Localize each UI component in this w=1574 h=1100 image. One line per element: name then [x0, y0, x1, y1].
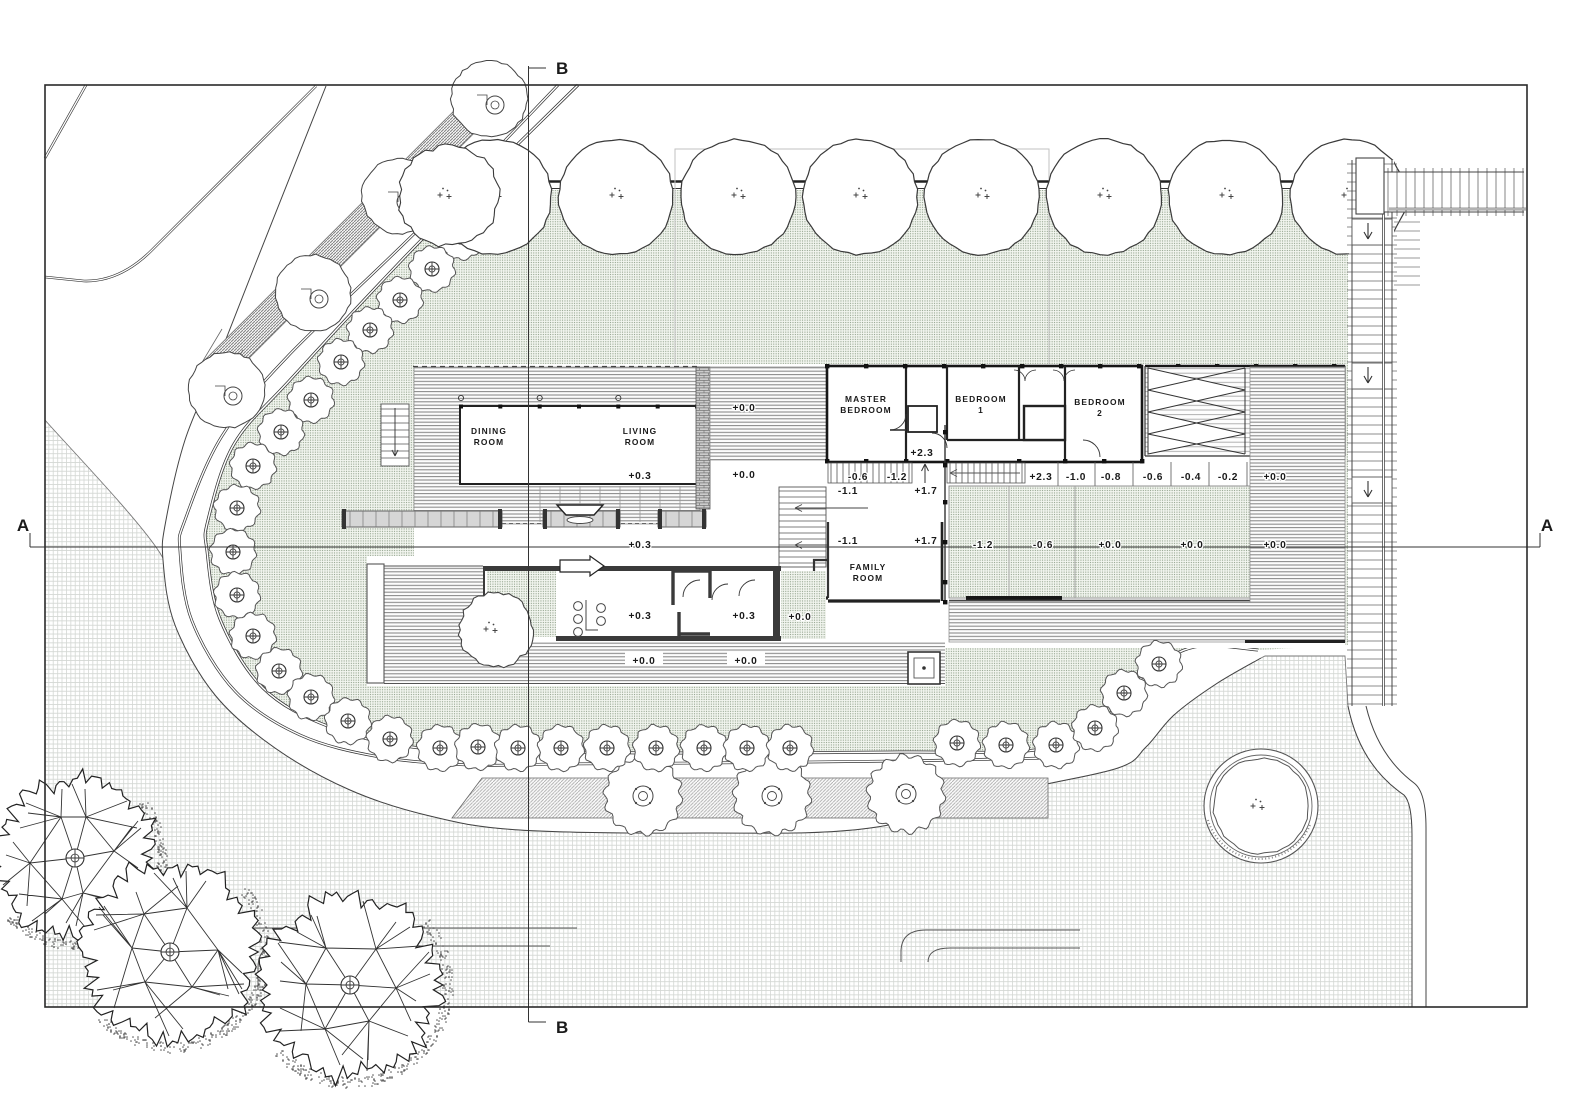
svg-text:2: 2 [1097, 408, 1103, 418]
svg-text:+0.3: +0.3 [629, 471, 652, 482]
svg-text:+0.3: +0.3 [733, 611, 756, 622]
svg-text:+0.0: +0.0 [1264, 540, 1287, 551]
svg-text:B: B [556, 59, 568, 78]
svg-text:A: A [1541, 516, 1553, 535]
svg-text:+0.0: +0.0 [633, 656, 656, 667]
svg-text:A: A [17, 516, 29, 535]
svg-text:ROOM: ROOM [853, 573, 883, 583]
svg-text:-1.1: -1.1 [838, 536, 858, 547]
svg-text:-0.8: -0.8 [1101, 472, 1121, 483]
svg-text:-1.2: -1.2 [973, 540, 993, 551]
svg-text:-0.2: -0.2 [1218, 472, 1238, 483]
svg-text:+0.3: +0.3 [629, 540, 652, 551]
svg-text:+0.0: +0.0 [1264, 472, 1287, 483]
svg-text:+1.7: +1.7 [915, 486, 938, 497]
svg-text:-1.2: -1.2 [887, 472, 907, 483]
svg-text:B: B [556, 1018, 568, 1037]
svg-text:+0.0: +0.0 [1099, 540, 1122, 551]
svg-text:BEDROOM: BEDROOM [1074, 397, 1125, 407]
svg-text:+2.3: +2.3 [911, 448, 934, 459]
svg-text:+1.7: +1.7 [915, 536, 938, 547]
svg-text:+0.0: +0.0 [1181, 540, 1204, 551]
svg-text:-0.6: -0.6 [1033, 540, 1053, 551]
svg-text:BEDROOM: BEDROOM [955, 394, 1006, 404]
svg-text:+2.3: +2.3 [1030, 472, 1053, 483]
svg-text:+0.0: +0.0 [733, 403, 756, 414]
svg-text:BEDROOM: BEDROOM [840, 405, 891, 415]
svg-text:+0.0: +0.0 [735, 656, 758, 667]
svg-text:ROOM: ROOM [474, 437, 504, 447]
svg-text:1: 1 [978, 405, 984, 415]
svg-text:LIVING: LIVING [623, 426, 658, 436]
svg-text:-0.4: -0.4 [1181, 472, 1201, 483]
svg-text:-1.1: -1.1 [838, 486, 858, 497]
svg-text:MASTER: MASTER [845, 394, 887, 404]
svg-text:+0.0: +0.0 [733, 470, 756, 481]
svg-text:+0.0: +0.0 [789, 612, 812, 623]
svg-text:-0.6: -0.6 [1143, 472, 1163, 483]
svg-text:-0.6: -0.6 [848, 472, 868, 483]
svg-text:ROOM: ROOM [625, 437, 655, 447]
svg-text:DINING: DINING [471, 426, 507, 436]
svg-text:FAMILY: FAMILY [850, 562, 887, 572]
svg-text:+0.3: +0.3 [629, 611, 652, 622]
svg-text:-1.0: -1.0 [1066, 472, 1086, 483]
